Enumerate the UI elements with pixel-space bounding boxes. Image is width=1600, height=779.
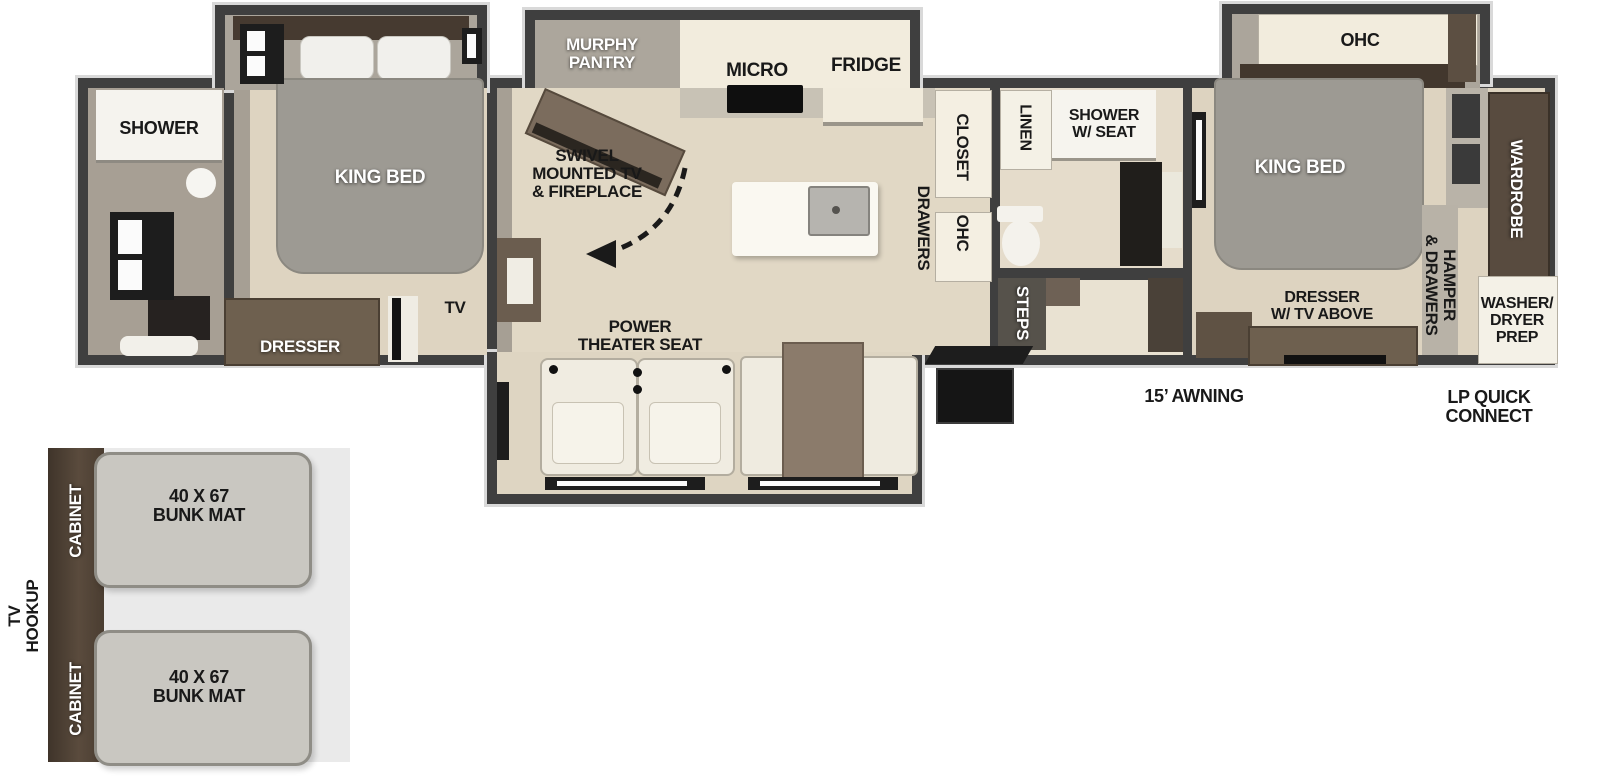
- front-dresser-label: DRESSER: [230, 338, 370, 356]
- murphy-pantry-label: MURPHY PANTRY: [552, 36, 652, 72]
- stove-cooktop: [727, 85, 803, 113]
- label-line: CONNECT: [1434, 407, 1544, 426]
- closet-label: CLOSET: [953, 97, 971, 197]
- front-bath-rug: [120, 336, 198, 356]
- window-pane: [118, 260, 142, 290]
- seat-cushion: [649, 402, 721, 464]
- label-line: W/ SEAT: [1066, 125, 1142, 142]
- mid-bath-vanity: [1120, 162, 1162, 266]
- label-line: MURPHY: [552, 36, 652, 54]
- living-slideout-window-icon: [748, 477, 898, 490]
- label-line: HAMPER: [1440, 220, 1458, 350]
- front-bed-pillow: [377, 36, 451, 80]
- kitchen-ohc-label: OHC: [953, 206, 971, 260]
- window-pane-dark: [1452, 144, 1480, 184]
- label-line: SWIVEL: [521, 147, 653, 165]
- power-theater-seat-label: POWER THEATER SEAT: [572, 318, 708, 354]
- rear-king-bed-label: KING BED: [1230, 158, 1370, 178]
- rear-right-windows: [1446, 88, 1488, 208]
- front-bath-sink: [186, 168, 216, 198]
- label-line: HOOKUP: [24, 556, 42, 676]
- awning-label: 15’ AWNING: [1104, 387, 1284, 406]
- steps-label: STEPS: [1013, 275, 1031, 351]
- window-pane: [467, 34, 476, 58]
- window-pane: [118, 220, 142, 254]
- front-bath-vanity: [148, 296, 210, 340]
- washer-dryer-prep-label: WASHER/ DRYER PREP: [1462, 296, 1572, 347]
- seat-button: [549, 365, 558, 374]
- steps-platform: [1046, 278, 1080, 306]
- bunk-mat-bottom-label: 40 X 67 BUNK MAT: [139, 668, 259, 706]
- label-line: SHOWER: [1066, 108, 1142, 125]
- rear-nightstand: [1196, 312, 1252, 358]
- kitchen-island: [732, 182, 878, 256]
- sink-faucet: [832, 206, 840, 214]
- fireplace-tv-cabinet: [497, 238, 541, 322]
- dinette-table: [782, 342, 864, 486]
- dinette-booth-right: [858, 356, 918, 476]
- seat-button: [722, 365, 731, 374]
- label-line: BUNK MAT: [139, 687, 259, 706]
- label-line: TV: [6, 556, 24, 676]
- fridge-label: FRIDGE: [806, 56, 926, 76]
- label-line: LP QUICK: [1434, 388, 1544, 407]
- theater-seat: [637, 358, 735, 476]
- living-slideout-window-icon: [545, 477, 705, 490]
- fireplace-inner: [507, 258, 533, 304]
- front-bath-window-icon: [110, 212, 174, 300]
- window-pane: [760, 481, 880, 486]
- theater-seat: [540, 358, 638, 476]
- label-line: POWER: [572, 318, 708, 336]
- bunk-mat-top-label: 40 X 67 BUNK MAT: [139, 487, 259, 525]
- wardrobe-label: WARDROBE: [1507, 114, 1525, 264]
- label-line: MOUNTED TV: [521, 165, 653, 183]
- front-tv: [392, 298, 401, 360]
- shower-w-seat-label: SHOWER W/ SEAT: [1066, 108, 1142, 142]
- front-slideout-corner-window-icon: [462, 28, 482, 64]
- seat-cushion: [552, 402, 624, 464]
- hall-corner-wedge: [1148, 278, 1183, 352]
- rear-bedroom-window-icon: [1192, 112, 1206, 208]
- front-shower-label: SHOWER: [99, 119, 219, 138]
- hamper-drawers-label: HAMPER & DRAWERS: [1422, 220, 1458, 350]
- label-line: DRYER: [1462, 313, 1572, 330]
- drawers-label: DRAWERS: [914, 173, 932, 283]
- label-line: 40 X 67: [139, 487, 259, 506]
- rear-dresser-tv-label: DRESSER W/ TV ABOVE: [1252, 290, 1392, 324]
- label-line: & DRAWERS: [1422, 220, 1440, 350]
- toilet-bowl: [1002, 220, 1040, 266]
- rear-ohc-label: OHC: [1320, 31, 1400, 50]
- label-line: 40 X 67: [139, 668, 259, 687]
- fridge-front: [823, 88, 923, 126]
- label-line: PANTRY: [552, 54, 652, 72]
- floorplan-canvas: SHOWER KING BED DRESSER TV MURPHY PANTRY…: [0, 0, 1600, 779]
- cabinet-bottom-label: CABINET: [67, 644, 85, 754]
- rear-tv-bar: [1284, 355, 1386, 364]
- label-line: BUNK MAT: [139, 506, 259, 525]
- living-slideout-side-window-icon: [497, 382, 509, 460]
- window-pane-dark: [1452, 94, 1480, 138]
- label-line: W/ TV ABOVE: [1252, 307, 1392, 324]
- micro-label: MICRO: [707, 61, 807, 81]
- window-pane: [247, 31, 265, 51]
- swivel-tv-label: SWIVEL MOUNTED TV & FIREPLACE: [521, 147, 653, 201]
- window-pane: [247, 56, 265, 76]
- window-pane: [1196, 120, 1202, 200]
- front-bed-pillow: [300, 36, 374, 80]
- seat-button: [633, 368, 642, 377]
- cabinet-top-label: CABINET: [67, 466, 85, 576]
- tv-hookup-label: TV HOOKUP: [6, 556, 42, 676]
- label-line: & FIREPLACE: [521, 183, 653, 201]
- label-line: DRESSER: [1252, 290, 1392, 307]
- seat-button: [633, 385, 642, 394]
- lp-quick-connect-label: LP QUICK CONNECT: [1434, 388, 1544, 426]
- window-pane: [557, 481, 687, 486]
- front-tv-label: TV: [425, 299, 485, 317]
- mid-bath-counter: [1162, 172, 1182, 248]
- label-line: THEATER SEAT: [572, 336, 708, 354]
- label-line: WASHER/: [1462, 296, 1572, 313]
- rear-slideout-side-panel: [1448, 14, 1476, 82]
- label-line: PREP: [1462, 330, 1572, 347]
- entry-steps-outside: [936, 368, 1014, 424]
- front-king-bed-label: KING BED: [310, 168, 450, 188]
- front-slideout-window-icon: [240, 24, 284, 84]
- linen-label: LINEN: [1016, 94, 1033, 160]
